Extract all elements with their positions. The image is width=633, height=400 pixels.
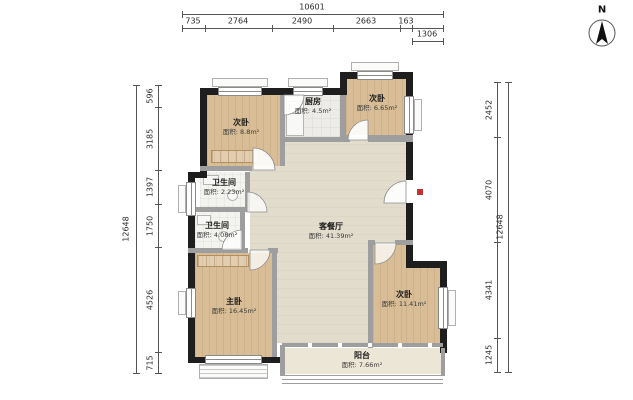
interior-wall [368,240,373,348]
interior-wall [280,95,285,166]
exterior-wall [406,203,413,268]
dimension-tick [155,107,162,108]
dimension-tick [182,11,183,18]
interior-wall [280,137,345,142]
window [404,96,414,134]
interior-wall [346,135,350,142]
dimension-tick [443,11,444,18]
dimension-tick [443,25,444,32]
interior-wall [395,240,413,245]
balcony-railing [282,374,443,384]
dimension-tick [155,352,162,353]
dimension-tick [205,25,206,32]
dimension-tick [505,372,512,373]
dim-right-seg-2: 4341 [485,280,494,300]
interior-wall [188,248,248,253]
north-label: N [598,5,606,16]
window [186,288,196,318]
dimension-line [158,85,159,373]
dimension-tick [494,242,501,243]
dimension-tick [494,137,501,138]
dimension-tick [494,82,501,83]
master-bedroom-floor [195,253,272,357]
interior-wall [240,212,245,253]
dimension-tick [155,373,162,374]
dimension-tick [412,38,413,45]
toilet [227,190,238,201]
wardrobe [197,255,249,267]
dim-left-seg-1: 3185 [146,129,155,149]
bay-window [199,364,268,379]
dim-left-total: 12648 [122,216,131,241]
dim-right-seg-1: 4070 [485,180,494,200]
window [205,355,262,364]
window-sill [351,62,399,71]
dimension-tick [494,372,501,373]
window [218,87,262,96]
exterior-wall [262,88,293,95]
interior-wall [200,166,252,171]
dimension-line [136,85,137,373]
exterior-wall [440,261,447,287]
dimension-tick [155,170,162,171]
dimension-tick [333,25,334,32]
window-sill [178,291,186,315]
dimension-tick [400,25,401,32]
wardrobe [211,150,259,163]
window-sill [212,78,268,87]
bedroom-top-right-floor [346,79,406,135]
bathroom-sink [197,215,211,225]
dimension-tick [182,25,183,32]
exterior-wall [188,357,205,363]
dim-left-seg-2: 1397 [146,177,155,197]
interior-wall [368,135,413,142]
dimension-line [182,14,443,15]
window [293,87,323,96]
dimension-line [182,28,443,29]
interior-wall [280,345,285,376]
interior-wall [245,172,250,212]
dim-left-seg-5: 715 [146,355,155,370]
dim-top-seg-1: 2764 [228,17,248,26]
dimension-tick [494,338,501,339]
window-sill [448,290,456,326]
floor-plan: 次卧 面积: 8.8m² 厨房 面积: 4.5m² 次卧 面积: 6.65m² … [0,0,633,400]
window [438,287,448,329]
exterior-wall [406,72,413,96]
dim-top-seg-0: 735 [185,17,200,26]
balcony-floor [282,348,443,374]
dimension-line [412,41,443,42]
bedroom-right-floor-b [406,266,440,343]
dim-left-seg-4: 4526 [146,290,155,310]
dim-right-seg-3: 1245 [485,345,494,365]
dimension-tick [412,25,413,32]
dimension-tick [155,247,162,248]
dimension-tick [272,25,273,32]
exterior-wall [340,72,347,95]
dimension-line [508,82,509,372]
exterior-wall [188,172,195,182]
window-sill [288,78,328,87]
dimension-tick [155,204,162,205]
dim-top-sub: 1306 [417,30,437,39]
toilet [218,231,229,242]
dim-left-seg-0: 596 [146,88,155,103]
dim-top-total: 10601 [299,3,324,12]
dim-top-seg-2: 2490 [292,17,312,26]
dim-right-seg-0: 2452 [485,100,494,120]
window-sill [178,185,186,213]
dim-left-seg-3: 1750 [146,216,155,236]
dimension-tick [133,373,140,374]
entry-door-marker [417,189,423,195]
kitchen-sink [289,101,301,114]
dimension-tick [443,38,444,45]
north-arrow-icon [586,18,618,50]
dim-right-total: 12648 [496,214,505,239]
dimension-tick [505,82,512,83]
dim-top-seg-3: 2663 [356,17,376,26]
window [357,71,393,80]
interior-wall [272,253,277,357]
dimension-tick [155,85,162,86]
window-sill [414,99,422,131]
interior-wall [441,348,445,376]
dimension-tick [133,85,140,86]
balcony-sliding-door [282,343,443,347]
exterior-wall [200,88,207,177]
window [186,182,196,216]
